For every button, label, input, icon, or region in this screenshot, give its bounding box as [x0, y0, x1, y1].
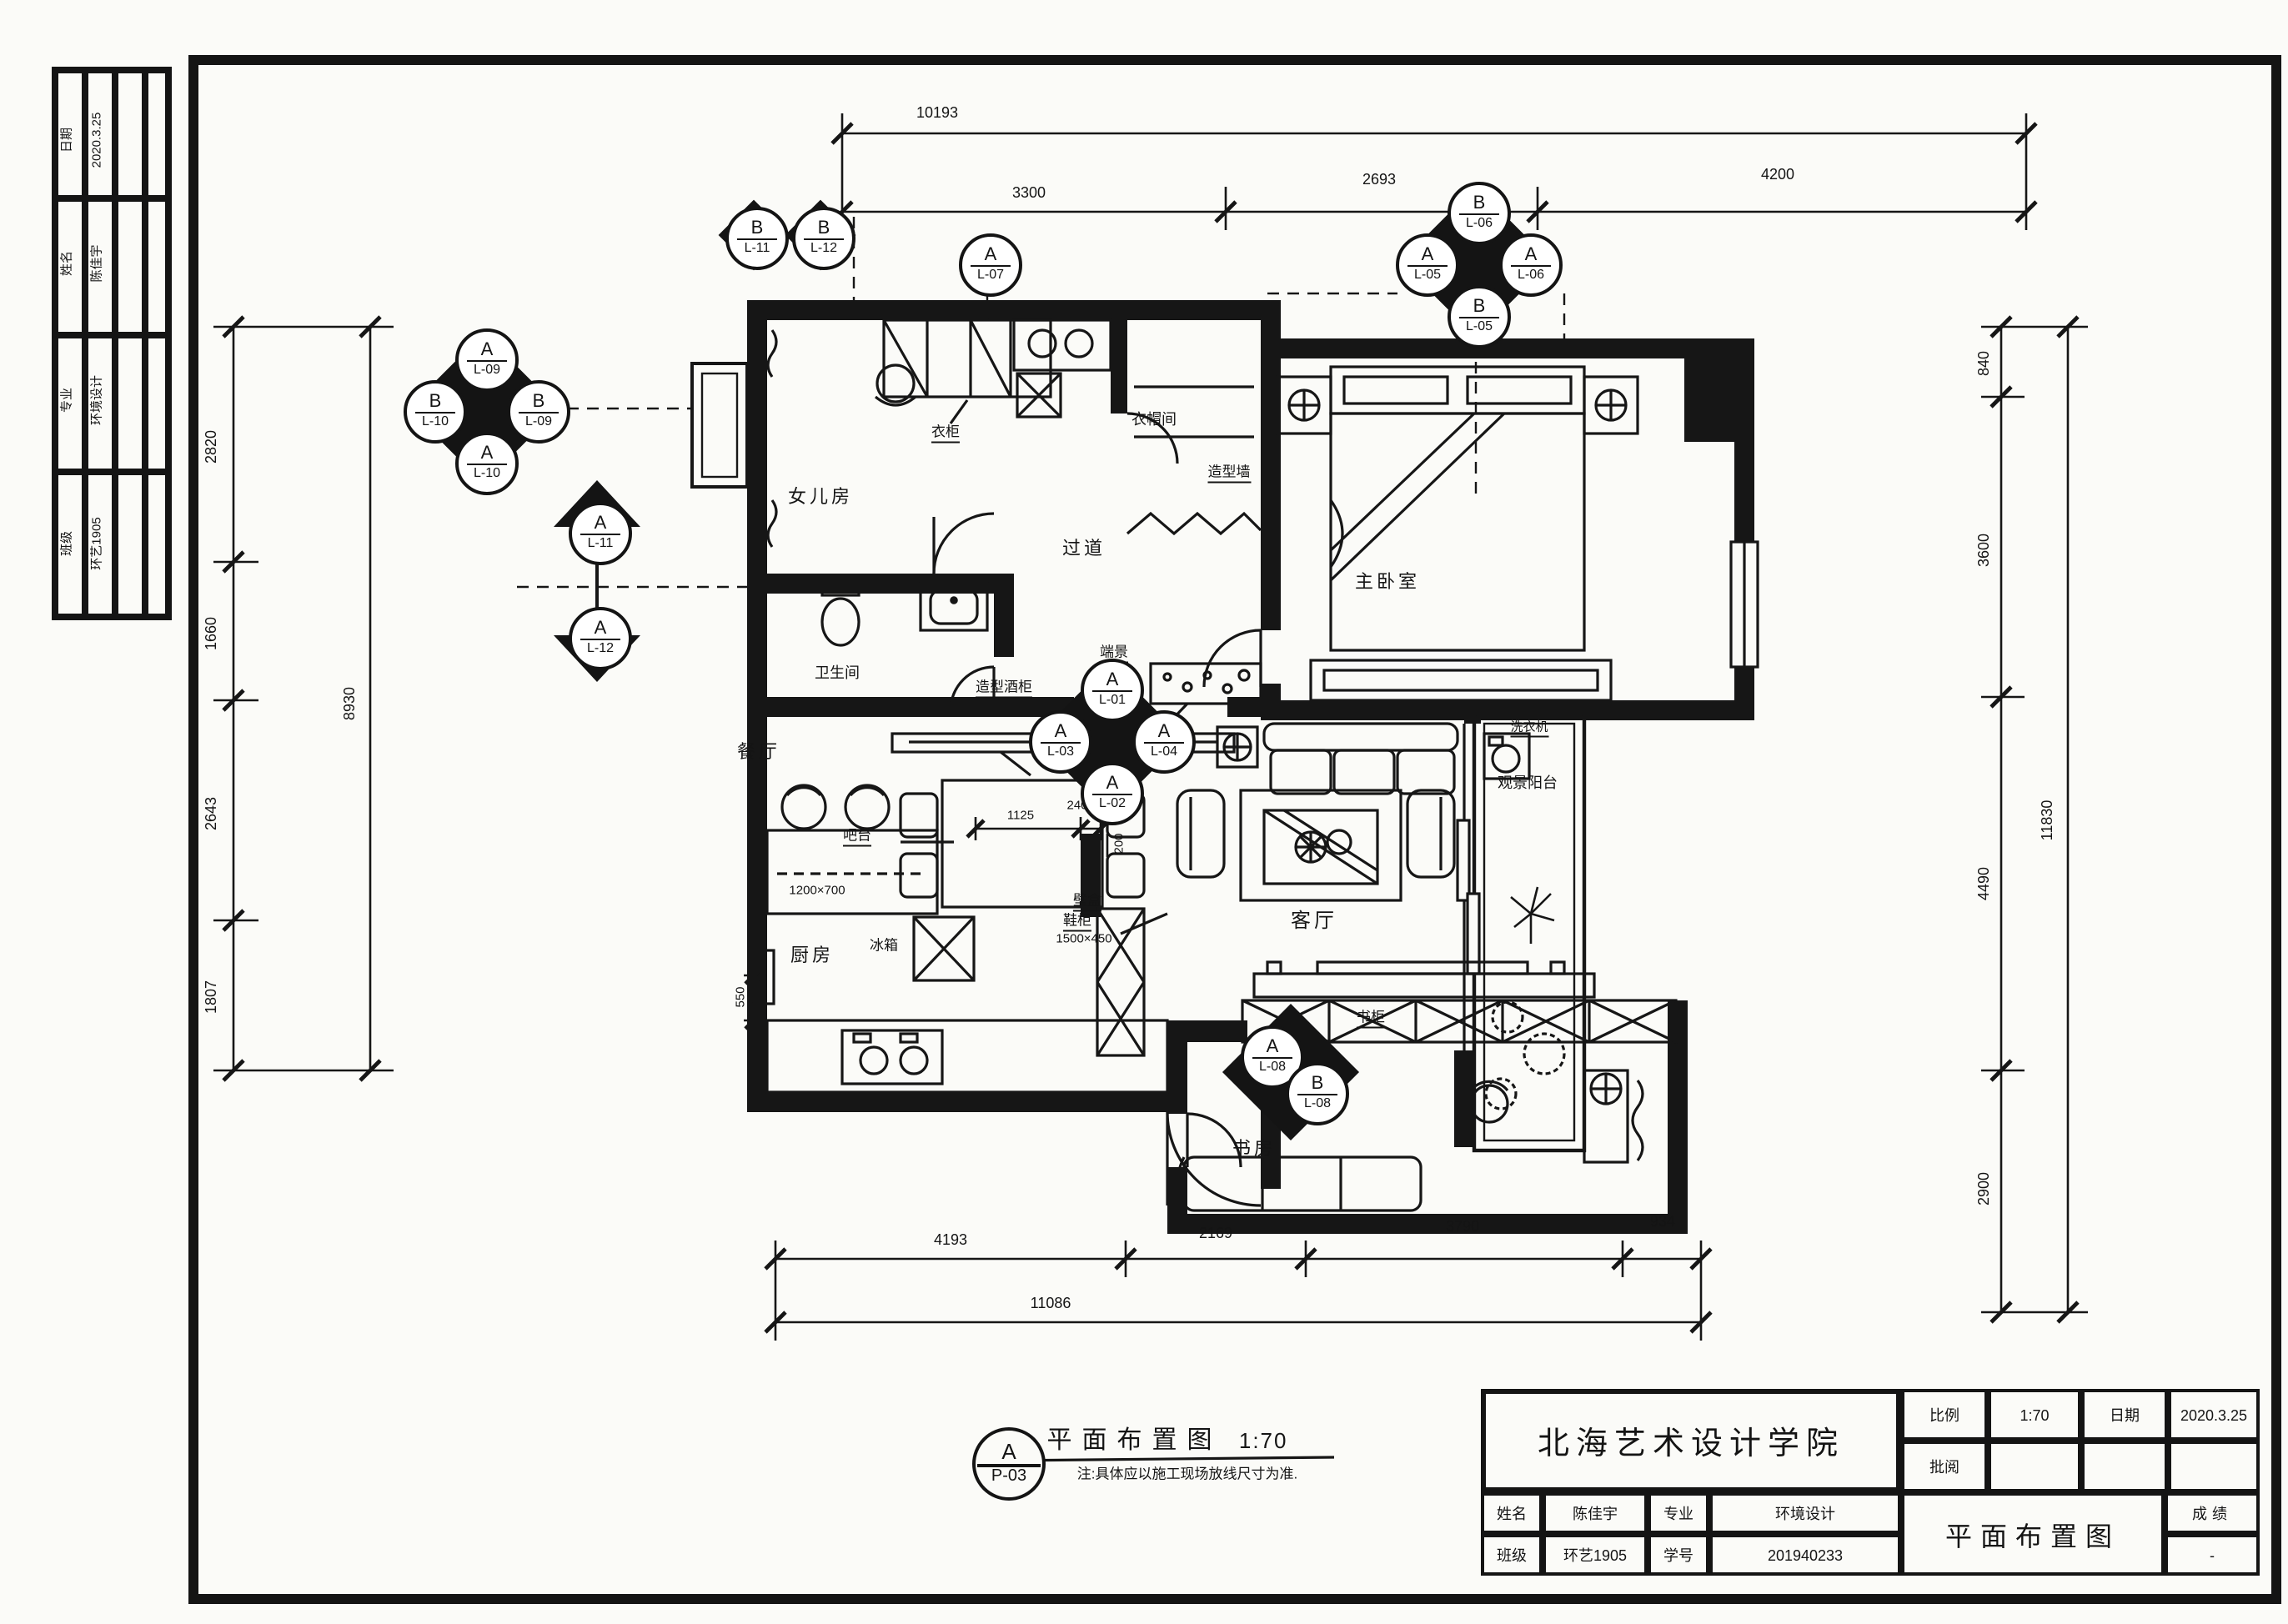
scale-label: 比例 [1901, 1389, 1988, 1441]
strip-line [112, 73, 118, 614]
empty-cell [2081, 1441, 2168, 1492]
room-hall: 过道 [1062, 541, 1106, 559]
elevation-cluster-center: A L-01 A L-03 A L-04 A L-02 [1029, 659, 1189, 819]
elevation-cluster-top-right: B L-06 A L-05 A L-06 B L-05 [1396, 182, 1556, 342]
elevation-marker-A-L11: A L-11 [569, 502, 632, 565]
scanned-drawing-page: 日期 2020.3.25 姓名 陈佳宇 专业 环境设计 班级 环艺1905 10… [0, 0, 2288, 1624]
elevation-cluster-left: A L-09 B L-10 B L-09 A L-10 [404, 328, 564, 489]
dim-top-seg: 3300 [1012, 186, 1046, 201]
date-value: 2020.3.25 [2168, 1389, 2260, 1441]
empty-cell [2168, 1441, 2260, 1492]
elevation-marker-B-L05: B L-05 [1448, 285, 1511, 348]
dim-left-seg: 2820 [204, 430, 219, 464]
strip-major-label: 专业 [61, 388, 73, 413]
review-empty-cell [1988, 1441, 2081, 1492]
dim-bottom-seg: 934 [1650, 1215, 1675, 1230]
elevation-marker-B-L06: B L-06 [1448, 182, 1511, 245]
plan-note: 注:具体应以施工现场放线尺寸为准. [1077, 1467, 1297, 1481]
room-kitchen: 厨房 [790, 948, 834, 966]
dim-bottom-seg: 4193 [934, 1233, 967, 1248]
drawing-title-cell: 平面布置图 [1901, 1492, 2165, 1576]
room-cloak: 衣帽间 [1131, 413, 1177, 428]
strip-class-value: 环艺1905 [91, 517, 103, 569]
elevation-marker-B-L11: B L-11 [725, 207, 789, 270]
dim-right-seg: 2900 [1977, 1172, 1992, 1205]
elevation-marker-B-L10: B L-10 [404, 380, 467, 444]
room-living: 客厅 [1291, 910, 1337, 930]
class-label: 班级 [1481, 1534, 1543, 1576]
elevation-marker-A-L12: A L-12 [569, 607, 632, 670]
dim-bottom-seg: 2169 [1199, 1226, 1232, 1241]
label-wardrobe: 衣柜 [931, 425, 960, 443]
strip-line [58, 469, 165, 475]
strip-name-label: 姓名 [61, 251, 73, 276]
label-fridge: 冰箱 [870, 939, 898, 953]
drawing-sheet: 日期 2020.3.25 姓名 陈佳宇 专业 环境设计 班级 环艺1905 10… [0, 0, 2288, 1624]
grade-value: - [2165, 1534, 2260, 1576]
student-id-value: 201940233 [1709, 1534, 1901, 1576]
class-value: 环艺1905 [1543, 1534, 1648, 1576]
plan-title: 平面布置图 1:70 [1047, 1428, 1288, 1453]
title-block: 北海艺术设计学院 比例 1:70 日期 2020.3.25 批阅 姓名 陈佳宇 … [1481, 1389, 2260, 1576]
label-bookcase: 书柜 [1357, 1010, 1385, 1028]
date-label: 日期 [2081, 1389, 2168, 1441]
elevation-marker-B-L09: B L-09 [507, 380, 570, 444]
dim-right-seg: 3600 [1977, 534, 1992, 567]
dim-detail-200: 200 [1113, 833, 1126, 854]
dim-top-total: 10193 [916, 106, 958, 121]
dim-right-seg: 4490 [1977, 867, 1992, 900]
dim-left-seg: 2643 [204, 797, 219, 830]
grade-label: 成绩 [2165, 1492, 2260, 1534]
room-daughter: 女儿房 [788, 489, 853, 508]
label-feature-wall: 造型墙 [1207, 465, 1250, 483]
elevation-marker-B-L12: B L-12 [792, 207, 855, 270]
elevation-marker-A-L10: A L-10 [455, 432, 519, 495]
strip-line [82, 73, 88, 614]
label-wall-box: 壁盒 [1073, 894, 1101, 911]
dim-bar-size: 1200×700 [789, 885, 845, 897]
room-study: 书房 [1232, 1141, 1276, 1160]
room-bath: 卫生间 [815, 666, 860, 681]
sheet-border [188, 55, 2281, 1604]
dim-left-total: 8930 [343, 687, 358, 720]
elevation-marker-A-L06: A L-06 [1499, 233, 1563, 297]
elevation-marker-A-L01: A L-01 [1081, 659, 1144, 722]
dim-right-total: 11830 [2040, 800, 2055, 841]
label-wine-cabinet: 造型酒柜 [976, 680, 1032, 698]
strip-line [58, 195, 165, 202]
dim-shoe-size: 1500×450 [1056, 933, 1111, 945]
elevation-marker-A-L04: A L-04 [1132, 710, 1196, 774]
strip-line [142, 73, 148, 614]
review-label: 批阅 [1901, 1441, 1988, 1492]
elevation-marker-A-L03: A L-03 [1029, 710, 1092, 774]
strip-date-label: 日期 [61, 128, 73, 153]
dim-left-seg: 1660 [204, 617, 219, 650]
elevation-marker-A-L07: A L-07 [959, 233, 1022, 297]
strip-line [58, 332, 165, 338]
strip-major-value: 环境设计 [91, 375, 103, 425]
room-balcony: 观景阳台 [1498, 776, 1558, 791]
dim-right-seg: 840 [1977, 351, 1992, 376]
dim-top-seg: 2693 [1362, 173, 1396, 188]
room-master: 主卧室 [1355, 574, 1420, 593]
scale-value: 1:70 [1988, 1389, 2081, 1441]
strip-date-value: 2020.3.25 [91, 113, 103, 168]
elevation-marker-A-L05: A L-05 [1396, 233, 1459, 297]
dim-top-seg: 4200 [1761, 168, 1794, 183]
dim-bottom-seg: 3790 [1446, 1220, 1479, 1235]
room-dining: 餐厅 [737, 744, 780, 763]
strip-class-label: 班级 [61, 531, 73, 556]
elevation-marker-A-L02: A L-02 [1081, 762, 1144, 825]
elevation-marker-B-L08: B L-08 [1286, 1062, 1349, 1125]
school-name: 北海艺术设计学院 [1481, 1389, 1901, 1492]
label-bar: 吧台 [843, 829, 871, 846]
dim-detail-550: 550 [735, 986, 747, 1007]
label-shoe-cabinet: 鞋柜 [1063, 914, 1091, 931]
name-label: 姓名 [1481, 1492, 1543, 1534]
student-id-label: 学号 [1648, 1534, 1709, 1576]
name-value: 陈佳宇 [1543, 1492, 1648, 1534]
major-value: 环境设计 [1709, 1492, 1901, 1534]
elevation-marker-A-L09: A L-09 [455, 328, 519, 392]
major-label: 专业 [1648, 1492, 1709, 1534]
strip-name-value: 陈佳宇 [91, 245, 103, 283]
drawing-number-bubble: A P-03 [972, 1427, 1046, 1501]
label-washer: 洗衣机 [1511, 721, 1548, 737]
dim-bottom-total: 11086 [1031, 1296, 1071, 1311]
dim-left-seg: 1807 [204, 980, 219, 1014]
